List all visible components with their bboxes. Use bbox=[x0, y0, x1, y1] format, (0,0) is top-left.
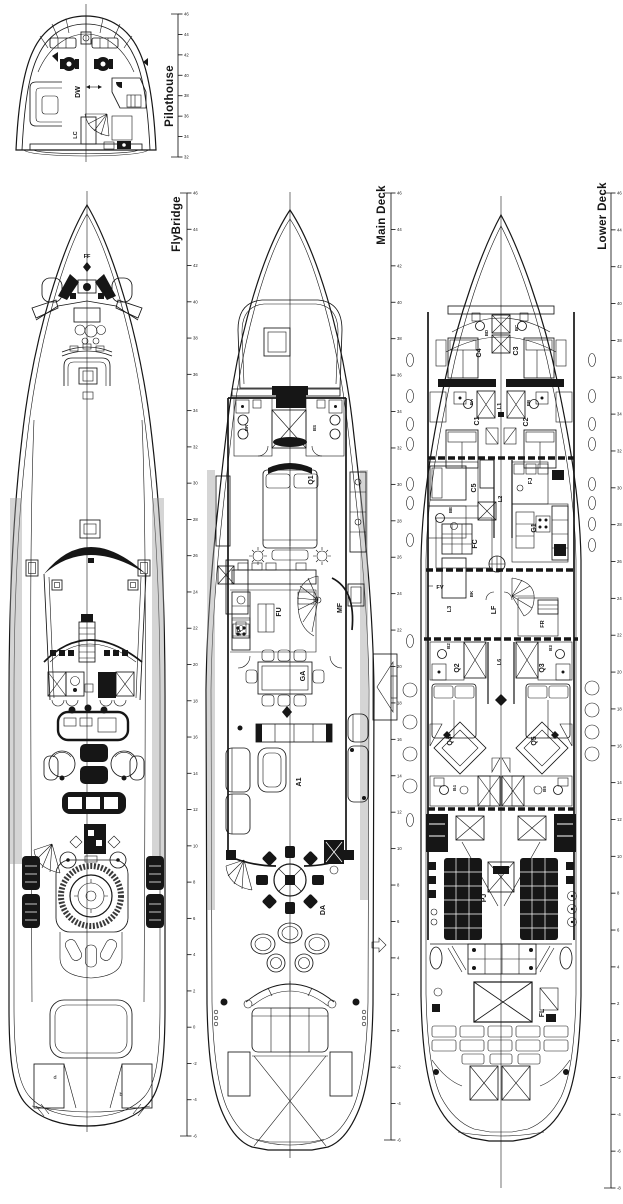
spiral-stairs-mf bbox=[297, 576, 364, 636]
ruler-tick-label: 0 bbox=[193, 1025, 196, 1030]
ruler-tick-label: 36 bbox=[193, 372, 198, 377]
crew-mess bbox=[436, 518, 492, 568]
ruler-tick-label: -2 bbox=[193, 1061, 197, 1066]
ruler-tick-label: 18 bbox=[193, 698, 198, 703]
stbd-walkway-shading bbox=[360, 470, 368, 900]
ruler-tick-label: 8 bbox=[617, 891, 620, 896]
ruler-tick-label: -4 bbox=[193, 1097, 197, 1102]
bar-counter bbox=[58, 705, 128, 741]
corridor-marker bbox=[498, 412, 504, 417]
ruler-tick-label: 8 bbox=[397, 883, 400, 888]
stbd-sidedeck-shading bbox=[152, 498, 164, 864]
room-label-pj: PJ bbox=[481, 894, 488, 903]
ruler-tick-label: 24 bbox=[397, 591, 402, 596]
ff-marker bbox=[83, 262, 91, 272]
room-label-br: BR bbox=[244, 424, 249, 431]
ruler-tick-label: -4 bbox=[397, 1101, 401, 1106]
ruler-tick-label: 8 bbox=[193, 880, 196, 885]
room-label-b2: B2 bbox=[446, 643, 451, 649]
room-label-q4: Q4 bbox=[447, 736, 454, 745]
room-label-bb: BB bbox=[526, 400, 531, 406]
ruler-tick-label: 4 bbox=[193, 952, 196, 957]
ruler-tick-label: 42 bbox=[193, 263, 198, 268]
locker bbox=[502, 758, 510, 772]
ruler-tick-label: 6 bbox=[617, 928, 620, 933]
ruler-tick-label: 38 bbox=[397, 336, 402, 341]
room-label-bs: BS bbox=[312, 425, 317, 431]
ruler-tick-label: 38 bbox=[184, 93, 189, 98]
room-label-fu: FU bbox=[276, 607, 283, 616]
guest-bath-port bbox=[430, 642, 486, 680]
ruler-tick-label: 10 bbox=[397, 846, 402, 851]
aft-sofa bbox=[62, 792, 126, 814]
ruler-tick-label: 26 bbox=[397, 555, 402, 560]
room-label-b5: B5 bbox=[542, 786, 547, 792]
chart-desk bbox=[112, 78, 146, 108]
direction-arrow bbox=[372, 938, 386, 952]
ruler-tick-label: 40 bbox=[617, 301, 622, 306]
galley bbox=[230, 590, 316, 652]
ruler-flybridge: 4644424038363432302826242220181614121086… bbox=[180, 191, 198, 1139]
lower-deck-plan: BD BC C4 C3 BA BB L1 C1 C2 C5 BE L2 FJ G… bbox=[403, 182, 609, 1188]
deck-hatch bbox=[83, 392, 93, 399]
port-wedge bbox=[52, 52, 58, 62]
room-label-q5: Q5 bbox=[531, 736, 538, 745]
room-label-l6: L6 bbox=[497, 659, 503, 666]
ruler-tick-label: 2 bbox=[397, 992, 400, 997]
ruler-tick-label: 30 bbox=[193, 481, 198, 486]
aft-stairs bbox=[34, 1064, 152, 1108]
room-label-fj: FJ bbox=[528, 478, 534, 485]
port-walkway-shading bbox=[207, 470, 215, 910]
locker bbox=[492, 758, 500, 772]
ruler-tick-label: 18 bbox=[397, 700, 402, 705]
room-label-da: DA bbox=[320, 905, 327, 915]
ruler-tick-label: 14 bbox=[617, 780, 622, 785]
ruler-tick-label: 40 bbox=[397, 300, 402, 305]
ottoman bbox=[80, 744, 108, 762]
ruler-main-deck: 4644424038363432302826242220181614121086… bbox=[384, 191, 402, 1143]
tv-diamond bbox=[495, 694, 507, 706]
ruler-tick-label: 16 bbox=[617, 743, 622, 748]
room-label-ga: GA bbox=[300, 671, 307, 682]
ruler-tick-label: 24 bbox=[617, 596, 622, 601]
ruler-tick-label: 32 bbox=[617, 448, 622, 453]
ruler-tick-label: 10 bbox=[193, 843, 198, 848]
room-label-b4: B4 bbox=[452, 785, 457, 791]
room-label-dw: DW bbox=[75, 86, 82, 98]
ruler-tick-label: 30 bbox=[397, 482, 402, 487]
ruler-lower-deck: 4644424038363432302826242220181614121086… bbox=[604, 191, 622, 1191]
ruler-tick-label: 40 bbox=[184, 73, 189, 78]
captain-cabin bbox=[428, 462, 478, 538]
pilothouse-title: Pilothouse bbox=[164, 65, 176, 127]
ruler-tick-label: 34 bbox=[617, 412, 622, 417]
lower-deck-title: Lower Deck bbox=[597, 182, 609, 250]
room-label-q2: Q2 bbox=[454, 663, 461, 672]
room-label-c2: C2 bbox=[523, 417, 530, 426]
ruler-tick-label: 32 bbox=[397, 445, 402, 450]
spiral-stairs-aft bbox=[512, 578, 534, 616]
ruler-tick-label: 38 bbox=[193, 336, 198, 341]
ruler-tick-label: 42 bbox=[397, 263, 402, 268]
vip-cabin-q4-bed bbox=[430, 722, 486, 774]
room-label-fc: FC bbox=[472, 539, 479, 548]
room-label-bk: BK bbox=[469, 590, 474, 597]
room-label-fl: FL bbox=[539, 1008, 546, 1017]
wet-bar-grill bbox=[48, 672, 134, 706]
ruler-tick-label: 16 bbox=[193, 735, 198, 740]
ruler-tick-label: 6 bbox=[397, 919, 400, 924]
gangway-symbol bbox=[373, 654, 397, 720]
ruler-tick-label: 36 bbox=[184, 114, 189, 119]
room-label-g1: G1 bbox=[531, 523, 538, 532]
ruler-tick-label: 4 bbox=[397, 955, 400, 960]
ruler-tick-label: -8 bbox=[617, 1186, 621, 1191]
ruler-tick-label: 14 bbox=[193, 771, 198, 776]
elevator-shaft bbox=[272, 392, 307, 448]
room-label-q3: Q3 bbox=[539, 663, 546, 672]
ruler-tick-label: 26 bbox=[193, 553, 198, 558]
room-label-l1: L1 bbox=[497, 403, 503, 410]
engineer-cabin bbox=[518, 598, 558, 636]
flybridge-plan: FF bbox=[9, 191, 183, 1132]
ruler-tick-label: 42 bbox=[184, 52, 189, 57]
vanity-band bbox=[218, 563, 316, 584]
ruler-tick-label: 46 bbox=[397, 191, 402, 196]
stairs-down bbox=[85, 114, 132, 140]
helm-chairs bbox=[60, 57, 113, 71]
ruler-tick-label: 22 bbox=[397, 628, 402, 633]
ruler-line bbox=[604, 193, 611, 1188]
ruler-tick-label: 14 bbox=[397, 773, 402, 778]
stern-detail bbox=[32, 1104, 150, 1116]
owner-stateroom-bed bbox=[249, 463, 331, 565]
ruler-tick-label: 30 bbox=[617, 485, 622, 490]
dw-arrow bbox=[86, 85, 102, 89]
ruler-tick-label: 46 bbox=[184, 12, 189, 17]
ruler-line bbox=[180, 193, 187, 1136]
helm-console bbox=[50, 32, 118, 48]
room-label-bc: BC bbox=[514, 324, 519, 331]
main-deck-plan: BR BS Q1 FU FP MF GA A1 DA Main Deck bbox=[206, 185, 397, 1158]
ruler-tick-label: 2 bbox=[617, 1001, 620, 1006]
fan-loungers bbox=[60, 932, 122, 978]
room-label-b3: B3 bbox=[548, 645, 553, 651]
room-label-lf: LF bbox=[491, 605, 498, 614]
room-label-a1: A1 bbox=[296, 777, 303, 786]
ruler-tick-label: 26 bbox=[617, 559, 622, 564]
ruler-tick-label: -4 bbox=[617, 1112, 621, 1117]
ruler-tick-label: 16 bbox=[397, 737, 402, 742]
room-label-c3: C3 bbox=[513, 346, 520, 355]
pilothouse-plan: DW LC Pilothouse bbox=[16, 4, 176, 162]
room-label-lc: LC bbox=[73, 131, 79, 138]
ruler-tick-label: -6 bbox=[397, 1138, 401, 1143]
ruler-tick-label: 36 bbox=[617, 375, 622, 380]
jacuzzi bbox=[56, 856, 128, 932]
guest-bath-stbd bbox=[516, 642, 572, 680]
ruler-tick-label: 32 bbox=[193, 444, 198, 449]
ruler-tick-label: -2 bbox=[397, 1065, 401, 1070]
ottoman bbox=[80, 766, 108, 784]
radar-arch bbox=[44, 614, 142, 662]
room-label-fv: FV bbox=[436, 585, 443, 591]
ruler-tick-label: 44 bbox=[184, 32, 189, 37]
ruler-tick-label: -6 bbox=[617, 1149, 621, 1154]
crew-stairs bbox=[478, 460, 512, 538]
room-label-fr: FR bbox=[540, 620, 546, 627]
ruler-tick-label: 44 bbox=[397, 227, 402, 232]
note-d: d bbox=[53, 1075, 56, 1081]
settee bbox=[30, 82, 62, 126]
dining-area bbox=[246, 650, 324, 718]
ruler-tick-label: -6 bbox=[193, 1134, 197, 1139]
bulkhead-bar bbox=[438, 379, 496, 387]
room-label-ba: BA bbox=[469, 398, 474, 405]
ruler-tick-label: 20 bbox=[397, 664, 402, 669]
ruler-tick-label: 10 bbox=[617, 854, 622, 859]
room-label-mf: MF bbox=[337, 602, 344, 613]
room-label-c5: C5 bbox=[471, 483, 478, 492]
ruler-tick-label: 0 bbox=[617, 1038, 620, 1043]
ruler-tick-label: 46 bbox=[617, 191, 622, 196]
vip-cabin-q5-bed bbox=[516, 722, 572, 774]
note-b: b bbox=[119, 1092, 122, 1098]
ruler-tick-label: 28 bbox=[193, 517, 198, 522]
ruler-tick-label: 34 bbox=[184, 134, 189, 139]
ruler-tick-label: 20 bbox=[193, 662, 198, 667]
room-label-c1: C1 bbox=[474, 416, 481, 425]
stbd-portholes bbox=[585, 354, 599, 762]
ruler-tick-label: 36 bbox=[397, 373, 402, 378]
bulkhead-bar bbox=[506, 379, 564, 387]
yacht-ga-drawing-sheet: DW LC Pilothouse FF bbox=[0, 0, 623, 1204]
ruler-tick-label: 22 bbox=[617, 633, 622, 638]
main-deck-title: Main Deck bbox=[376, 185, 388, 245]
ruler-tick-label: 28 bbox=[617, 522, 622, 527]
boat-deck bbox=[50, 1000, 132, 1058]
ruler-tick-label: 46 bbox=[193, 191, 198, 196]
ruler-tick-label: 6 bbox=[193, 916, 196, 921]
skylight bbox=[80, 520, 100, 538]
ruler-tick-label: 12 bbox=[193, 807, 198, 812]
ruler-tick-label: 44 bbox=[193, 227, 198, 232]
ruler-tick-label: 12 bbox=[617, 817, 622, 822]
ruler-tick-label: 38 bbox=[617, 338, 622, 343]
room-label-c4: C4 bbox=[476, 348, 483, 357]
ruler-tick-label: 40 bbox=[193, 299, 198, 304]
aft-deck-dining bbox=[256, 846, 324, 914]
ruler-tick-label: 4 bbox=[617, 964, 620, 969]
ruler-tick-label: 0 bbox=[397, 1028, 400, 1033]
lobby bbox=[486, 556, 512, 600]
guest-stairs bbox=[442, 558, 466, 598]
ruler-tick-label: 22 bbox=[193, 626, 198, 631]
room-label-fp: FP bbox=[237, 628, 243, 635]
room-label-bd: BD bbox=[484, 330, 489, 336]
ruler-tick-label: 32 bbox=[184, 155, 189, 160]
ruler-tick-label: 24 bbox=[193, 589, 198, 594]
room-label-be: BE bbox=[448, 507, 453, 513]
flybridge-title: FlyBridge bbox=[171, 196, 183, 252]
ruler-tick-label: 28 bbox=[397, 518, 402, 523]
port-sidedeck-shading bbox=[10, 498, 22, 864]
room-label-l2: L2 bbox=[498, 496, 504, 503]
ruler-tick-label: -2 bbox=[617, 1075, 621, 1080]
ruler-tick-label: 42 bbox=[617, 264, 622, 269]
ruler-tick-label: 18 bbox=[617, 706, 622, 711]
port-portholes bbox=[403, 354, 417, 827]
ruler-tick-label: 2 bbox=[193, 988, 196, 993]
ruler-tick-label: 44 bbox=[617, 227, 622, 232]
ruler-tick-label: 34 bbox=[193, 408, 198, 413]
ruler-tick-label: 20 bbox=[617, 670, 622, 675]
room-label-q1: Q1 bbox=[308, 475, 315, 484]
room-label-l3: L3 bbox=[447, 606, 453, 613]
mast-and-radar bbox=[74, 308, 106, 344]
his-bathroom bbox=[234, 398, 272, 456]
room-label-ff: FF bbox=[84, 254, 91, 260]
ruler-tick-label: 12 bbox=[397, 810, 402, 815]
crew-galley bbox=[512, 504, 568, 562]
ga-drawing: DW LC Pilothouse FF bbox=[0, 0, 623, 1204]
ruler-tick-label: 34 bbox=[397, 409, 402, 414]
